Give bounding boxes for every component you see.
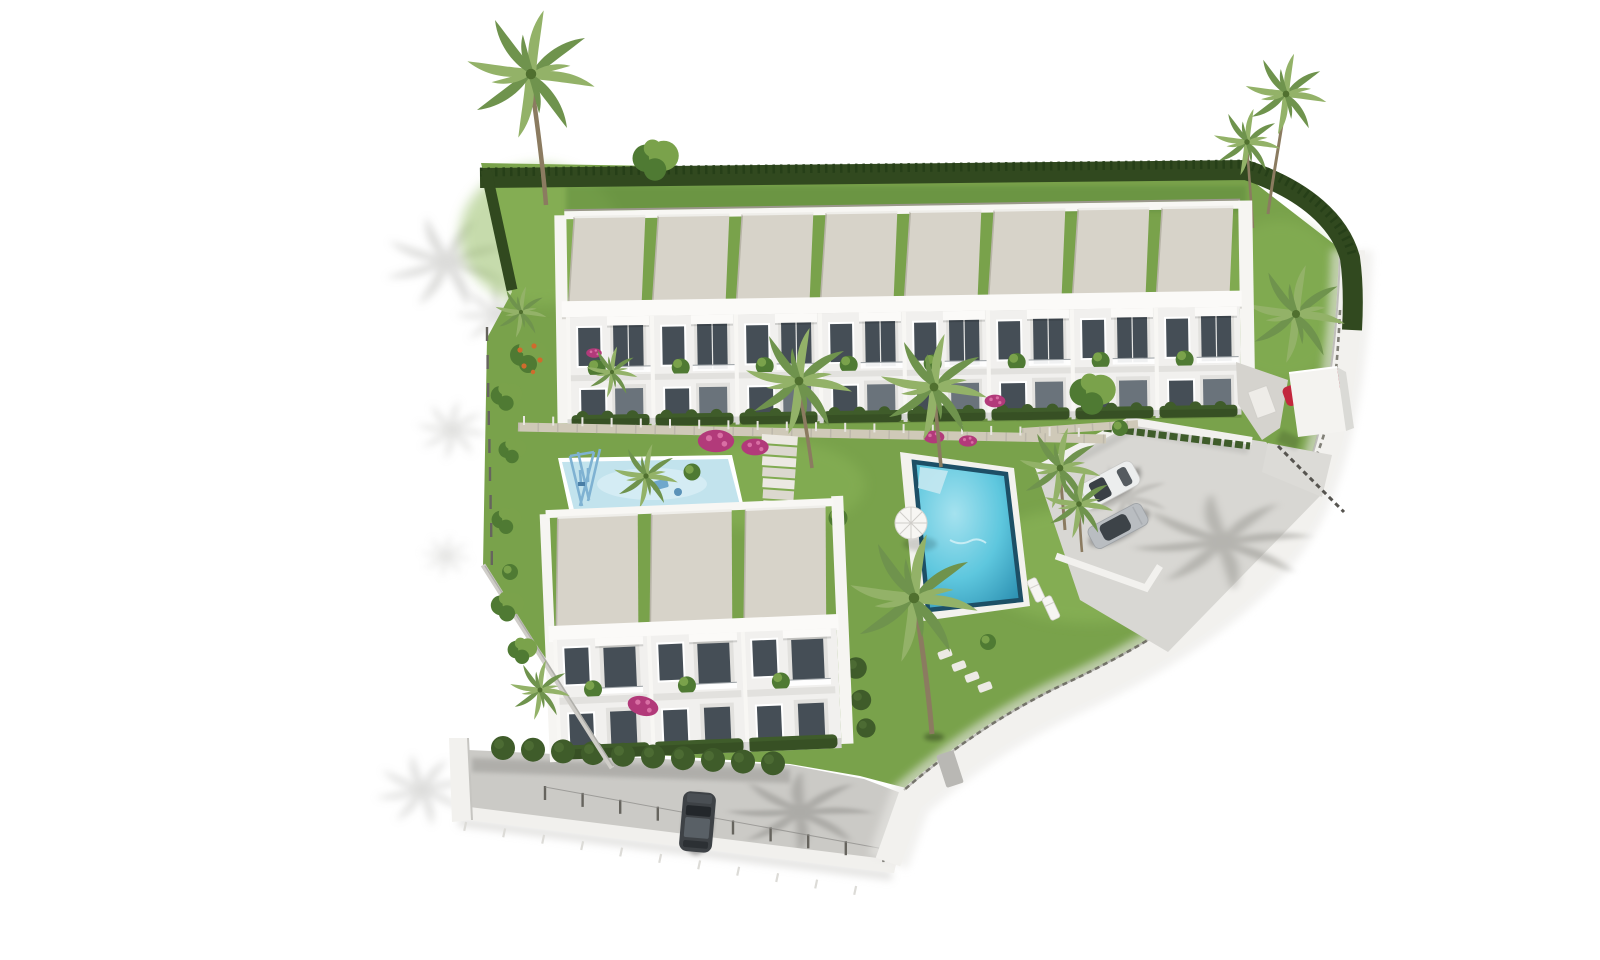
garden-fence-post <box>727 420 729 429</box>
roof-panel <box>651 215 730 302</box>
bougainvillea <box>959 435 977 446</box>
fence-post <box>581 793 583 807</box>
hedge-bush <box>611 743 635 767</box>
parasol <box>895 507 927 539</box>
roof-panel <box>903 211 982 298</box>
garden-fence-post <box>611 418 613 427</box>
bougainvillea <box>741 439 768 456</box>
roof-panel <box>740 506 831 620</box>
fence-post <box>619 800 621 814</box>
entrance-canopy <box>1289 367 1346 437</box>
hedge-bush <box>761 751 785 775</box>
hedge-bush <box>701 748 725 772</box>
bougainvillea <box>698 430 734 452</box>
roof-panel <box>987 209 1066 296</box>
garden-bush <box>980 634 996 650</box>
lower-roofs <box>552 506 830 627</box>
hedge-bush <box>641 745 665 769</box>
fence-post <box>769 827 771 841</box>
hedge-bush <box>491 736 515 760</box>
fence-post <box>488 411 490 425</box>
hedge-bush <box>521 738 545 762</box>
garden-bush <box>1112 420 1128 436</box>
garden-fence-post <box>1078 428 1080 437</box>
hedge-bush <box>731 750 755 774</box>
garden-fence-post <box>757 421 759 430</box>
garden-fence-post <box>1019 427 1021 436</box>
fence-post <box>807 834 809 848</box>
lower-terraced-row <box>539 496 853 763</box>
roof-panel <box>552 514 643 628</box>
fence-post <box>845 841 847 855</box>
garden-fence-post <box>581 417 583 426</box>
roof-panel <box>567 216 646 303</box>
garden-fence-post <box>669 419 671 428</box>
bougainvillea <box>985 395 1006 408</box>
fence-post <box>657 807 659 821</box>
hedge-bush <box>551 739 575 763</box>
fence-post <box>486 327 488 341</box>
fence-post <box>489 467 491 481</box>
roof-panel <box>646 510 737 624</box>
garden-fence-post <box>552 417 554 426</box>
roof-panel <box>735 213 814 300</box>
fence-post <box>732 821 734 835</box>
garden-fence-post <box>698 420 700 429</box>
garden-fence-post <box>815 422 817 431</box>
fence-post <box>488 439 490 453</box>
roof-panel <box>1155 207 1234 294</box>
garden-fence-post <box>873 423 875 432</box>
garden-fence-post <box>844 423 846 432</box>
garden-fence-post <box>990 426 992 435</box>
fence-post <box>489 495 491 509</box>
garden-fence-post <box>786 422 788 431</box>
garden-bush <box>684 464 701 481</box>
fence-post <box>490 523 492 537</box>
fence-post <box>487 383 489 397</box>
garden-fence-post <box>523 416 525 425</box>
roof-panel <box>819 212 898 299</box>
fence-post <box>486 355 488 369</box>
site-render <box>0 0 1600 960</box>
garden-fence-post <box>903 424 905 433</box>
fence-post <box>544 786 546 800</box>
garden-fence-post <box>1049 427 1051 436</box>
fence-post <box>491 551 493 565</box>
hedge-bush <box>671 746 695 770</box>
dark-car-street <box>678 791 716 857</box>
roof-panel <box>1071 208 1150 295</box>
garden-fence-post <box>640 418 642 427</box>
